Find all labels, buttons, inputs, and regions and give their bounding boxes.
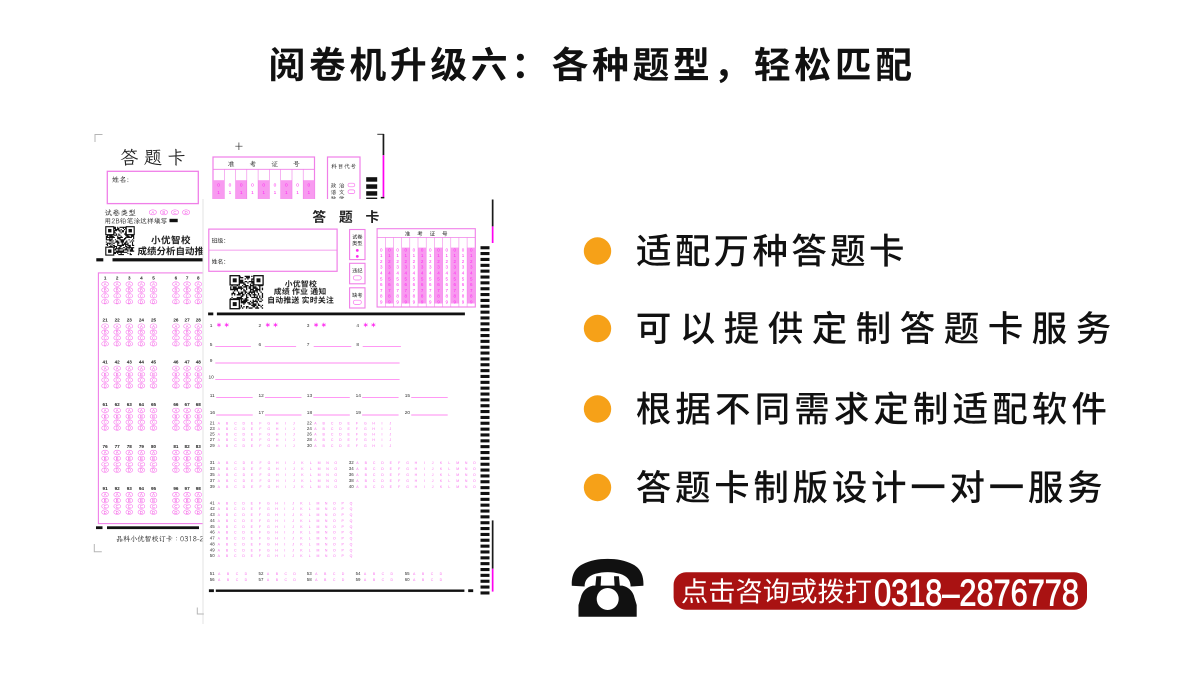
svg-text:C: C	[186, 420, 189, 425]
svg-text:35: 35	[210, 472, 215, 477]
svg-text:C: C	[174, 462, 177, 467]
svg-text:0: 0	[240, 182, 243, 188]
svg-text:D: D	[152, 510, 155, 515]
svg-text:16: 16	[210, 410, 216, 416]
svg-text:C: C	[116, 293, 119, 298]
svg-text:19: 19	[356, 410, 362, 416]
svg-text:D: D	[152, 299, 155, 304]
svg-text:B: B	[186, 456, 189, 461]
svg-text:C: C	[186, 462, 189, 467]
svg-text:I: I	[382, 444, 383, 448]
svg-text:42: 42	[210, 506, 215, 511]
svg-text:D: D	[128, 510, 131, 515]
svg-text:18: 18	[307, 410, 313, 416]
svg-text:F: F	[356, 444, 358, 448]
svg-text:O: O	[473, 467, 476, 471]
svg-text:6: 6	[259, 342, 262, 348]
svg-text:C: C	[173, 210, 176, 215]
svg-text:B: B	[186, 288, 189, 293]
svg-text:Q: Q	[350, 519, 353, 523]
svg-text:I: I	[285, 473, 286, 477]
svg-text:D: D	[186, 341, 189, 346]
svg-text:A: A	[128, 324, 131, 329]
svg-text:J: J	[292, 525, 294, 529]
svg-text:I: I	[284, 507, 285, 511]
svg-text:76: 76	[103, 444, 109, 449]
svg-text:A: A	[128, 450, 131, 455]
svg-text:I: I	[382, 438, 383, 442]
svg-text:5: 5	[152, 276, 155, 281]
svg-text:O: O	[333, 501, 336, 505]
svg-text:B: B	[104, 372, 107, 377]
svg-text:F: F	[259, 531, 261, 535]
svg-text:F: F	[356, 438, 358, 442]
svg-text:G: G	[268, 479, 271, 483]
svg-text:D: D	[116, 510, 119, 515]
svg-text:D: D	[116, 426, 119, 431]
svg-text:D: D	[152, 384, 155, 389]
svg-text:23: 23	[210, 426, 215, 431]
svg-text:A: A	[152, 366, 155, 371]
svg-text:G: G	[406, 485, 409, 489]
svg-text:L: L	[309, 543, 311, 547]
svg-text:3: 3	[307, 323, 310, 329]
svg-text:G: G	[267, 433, 270, 437]
svg-text:C: C	[186, 504, 189, 509]
svg-text:O: O	[333, 537, 336, 541]
svg-text:12: 12	[259, 393, 265, 399]
svg-text:G: G	[267, 421, 270, 425]
svg-text:I: I	[285, 461, 286, 465]
svg-text:L: L	[448, 479, 450, 483]
svg-text:F: F	[398, 485, 400, 489]
svg-text:J: J	[432, 479, 434, 483]
svg-text:15: 15	[405, 393, 411, 399]
svg-text:G: G	[268, 461, 271, 465]
svg-text:F: F	[356, 427, 358, 431]
svg-text:L: L	[309, 501, 311, 505]
svg-text:L: L	[309, 548, 311, 552]
svg-text:I: I	[382, 427, 383, 431]
svg-text:B: B	[140, 330, 143, 335]
svg-text:45: 45	[151, 360, 157, 365]
svg-text:L: L	[310, 479, 312, 483]
svg-text:51: 51	[210, 571, 215, 576]
svg-text:C: C	[152, 336, 155, 341]
svg-text:G: G	[364, 433, 367, 437]
svg-text:4: 4	[356, 323, 359, 329]
svg-text:7: 7	[186, 276, 189, 281]
svg-text:A: A	[116, 324, 119, 329]
svg-text:F: F	[260, 467, 262, 471]
svg-text:C: C	[116, 420, 119, 425]
svg-text:A: A	[116, 282, 119, 287]
svg-text:7: 7	[307, 342, 310, 348]
svg-text:B: B	[186, 372, 189, 377]
svg-text:Q: Q	[350, 531, 353, 535]
svg-text:A: A	[116, 450, 119, 455]
svg-text:C: C	[140, 504, 143, 509]
svg-text:G: G	[364, 438, 367, 442]
svg-text:J: J	[292, 519, 294, 523]
svg-text:D: D	[140, 384, 143, 389]
svg-text:A: A	[152, 492, 155, 497]
svg-text:C: C	[128, 293, 131, 298]
svg-text:D: D	[104, 299, 107, 304]
svg-text:M: M	[318, 473, 321, 477]
svg-text:G: G	[267, 427, 270, 431]
svg-text:A: A	[175, 324, 178, 329]
svg-text:A: A	[175, 282, 178, 287]
svg-text:C: C	[186, 336, 189, 341]
svg-text:B: B	[175, 414, 178, 419]
svg-text:G: G	[267, 543, 270, 547]
svg-text:L: L	[448, 473, 450, 477]
svg-text:Q: Q	[350, 543, 353, 547]
svg-text:I: I	[284, 537, 285, 541]
svg-text:D: D	[186, 299, 189, 304]
svg-text:I: I	[284, 554, 285, 558]
svg-text:F: F	[398, 473, 400, 477]
svg-text:53: 53	[307, 571, 312, 576]
svg-text:A: A	[175, 450, 178, 455]
svg-text:G: G	[267, 531, 270, 535]
svg-text:F: F	[259, 444, 261, 448]
svg-text:B: B	[152, 372, 155, 377]
svg-text:B: B	[116, 330, 119, 335]
svg-text:A: A	[104, 324, 107, 329]
svg-text:C: C	[152, 293, 155, 298]
svg-text:B: B	[116, 414, 119, 419]
svg-text:C: C	[128, 420, 131, 425]
svg-text:A: A	[186, 408, 189, 413]
svg-text:J: J	[293, 438, 295, 442]
svg-text:40: 40	[349, 484, 354, 489]
svg-text:1: 1	[210, 323, 213, 329]
svg-text:F: F	[259, 537, 261, 541]
svg-text:G: G	[406, 473, 409, 477]
svg-text:I: I	[382, 433, 383, 437]
svg-text:I: I	[285, 485, 286, 489]
svg-text:L: L	[309, 507, 311, 511]
svg-text:95: 95	[151, 486, 157, 491]
svg-text:D: D	[104, 468, 107, 473]
svg-text:C: C	[152, 462, 155, 467]
svg-text:D: D	[174, 384, 177, 389]
svg-text:B: B	[128, 330, 131, 335]
svg-text:A: A	[104, 492, 107, 497]
svg-text:B: B	[186, 498, 189, 503]
svg-text:A: A	[116, 408, 119, 413]
svg-text:G: G	[268, 467, 271, 471]
svg-text:A: A	[116, 366, 119, 371]
svg-text:J: J	[293, 467, 295, 471]
svg-text:J: J	[293, 473, 295, 477]
svg-text:A: A	[128, 366, 131, 371]
svg-text:21: 21	[210, 420, 215, 425]
svg-text:77: 77	[115, 444, 121, 449]
svg-text:59: 59	[356, 577, 361, 582]
svg-text:C: C	[152, 504, 155, 509]
svg-text:C: C	[152, 420, 155, 425]
svg-text:B: B	[128, 414, 131, 419]
svg-text:I: I	[424, 461, 425, 465]
svg-text:44: 44	[210, 518, 215, 523]
svg-text:A: A	[152, 324, 155, 329]
svg-text:L: L	[310, 467, 312, 471]
svg-text:J: J	[390, 444, 392, 448]
svg-text:B: B	[116, 456, 119, 461]
svg-text:32: 32	[349, 460, 354, 465]
svg-text:41: 41	[210, 500, 215, 505]
svg-text:66: 66	[173, 402, 179, 407]
svg-text:A: A	[186, 450, 189, 455]
svg-text:F: F	[260, 473, 262, 477]
svg-text:D: D	[186, 510, 189, 515]
svg-text:22: 22	[115, 318, 121, 323]
svg-text:C: C	[104, 378, 107, 383]
svg-text:28: 28	[307, 437, 312, 442]
svg-text:D: D	[186, 468, 189, 473]
svg-text:O: O	[333, 543, 336, 547]
svg-text:B: B	[175, 330, 178, 335]
svg-text:D: D	[185, 210, 188, 215]
svg-text:27: 27	[210, 437, 215, 442]
svg-text:D: D	[104, 426, 107, 431]
svg-text:42: 42	[115, 360, 121, 365]
svg-text:B: B	[152, 288, 155, 293]
svg-text:54: 54	[356, 571, 361, 576]
svg-text:96: 96	[173, 486, 179, 491]
svg-text:65: 65	[151, 402, 157, 407]
svg-text:64: 64	[139, 402, 145, 407]
svg-text:F: F	[356, 421, 358, 425]
svg-text:L: L	[448, 485, 450, 489]
svg-text:A: A	[104, 366, 107, 371]
svg-text:D: D	[186, 384, 189, 389]
svg-text:C: C	[174, 420, 177, 425]
svg-text:31: 31	[210, 460, 215, 465]
svg-text:B: B	[140, 456, 143, 461]
svg-text:D: D	[140, 510, 143, 515]
svg-text:I: I	[284, 531, 285, 535]
svg-text:J: J	[293, 479, 295, 483]
svg-text:M: M	[316, 543, 319, 547]
svg-text:8: 8	[356, 342, 359, 348]
svg-text:82: 82	[185, 444, 191, 449]
svg-text:61: 61	[103, 402, 109, 407]
svg-text:2: 2	[116, 276, 119, 281]
svg-text:0: 0	[274, 182, 277, 188]
svg-text:J: J	[292, 513, 294, 517]
svg-text:G: G	[364, 421, 367, 425]
svg-text:A: A	[186, 366, 189, 371]
svg-text:B: B	[116, 288, 119, 293]
svg-text:43: 43	[210, 512, 215, 517]
svg-text:B: B	[140, 498, 143, 503]
svg-text:26: 26	[307, 432, 312, 437]
svg-text:M: M	[456, 461, 459, 465]
svg-text:F: F	[260, 461, 262, 465]
svg-text:A: A	[152, 282, 155, 287]
svg-text:B: B	[128, 498, 131, 503]
svg-text:G: G	[364, 427, 367, 431]
svg-text:O: O	[334, 473, 337, 477]
svg-text:56: 56	[210, 577, 215, 582]
svg-text:A: A	[140, 408, 143, 413]
svg-text:M: M	[456, 485, 459, 489]
svg-text:A: A	[128, 408, 131, 413]
svg-text:B: B	[152, 414, 155, 419]
svg-text:C: C	[104, 336, 107, 341]
svg-text:C: C	[128, 504, 131, 509]
svg-text:D: D	[140, 426, 143, 431]
svg-text:67: 67	[185, 402, 191, 407]
svg-text:93: 93	[127, 486, 133, 491]
svg-text:F: F	[259, 427, 261, 431]
svg-text:94: 94	[139, 486, 145, 491]
svg-text:I: I	[285, 427, 286, 431]
svg-text:36: 36	[349, 472, 354, 477]
svg-text:55: 55	[405, 571, 410, 576]
svg-text:L: L	[309, 519, 311, 523]
svg-text:80: 80	[151, 444, 157, 449]
svg-text:F: F	[259, 525, 261, 529]
svg-text:M: M	[316, 531, 319, 535]
svg-text:L: L	[448, 467, 450, 471]
svg-text:0: 0	[285, 182, 288, 188]
svg-text:J: J	[292, 548, 294, 552]
svg-text:Q: Q	[350, 525, 353, 529]
svg-text:L: L	[310, 473, 312, 477]
svg-text:34: 34	[349, 466, 354, 471]
svg-text:J: J	[292, 501, 294, 505]
svg-text:C: C	[116, 504, 119, 509]
svg-text:F: F	[260, 485, 262, 489]
svg-text:J: J	[293, 427, 295, 431]
svg-text:J: J	[293, 433, 295, 437]
svg-text:G: G	[267, 513, 270, 517]
svg-text:O: O	[333, 548, 336, 552]
svg-text:C: C	[140, 462, 143, 467]
svg-text:I: I	[424, 479, 425, 483]
svg-text:B: B	[116, 372, 119, 377]
svg-text:O: O	[334, 479, 337, 483]
svg-text:M: M	[318, 461, 321, 465]
svg-text:I: I	[285, 421, 286, 425]
svg-text:D: D	[116, 468, 119, 473]
svg-text:D: D	[152, 426, 155, 431]
svg-text:J: J	[432, 473, 434, 477]
svg-text:G: G	[267, 501, 270, 505]
svg-text:L: L	[309, 537, 311, 541]
svg-text:39: 39	[210, 484, 215, 489]
svg-text:D: D	[116, 299, 119, 304]
svg-text:C: C	[140, 378, 143, 383]
svg-text:L: L	[310, 461, 312, 465]
svg-text:Q: Q	[350, 513, 353, 517]
svg-text:B: B	[152, 456, 155, 461]
svg-text:33: 33	[210, 466, 215, 471]
svg-text:13: 13	[307, 393, 313, 399]
svg-text:B: B	[152, 330, 155, 335]
svg-text:47: 47	[210, 536, 215, 541]
svg-text:91: 91	[103, 486, 109, 491]
svg-text:Q: Q	[350, 537, 353, 541]
svg-text:Q: Q	[350, 507, 353, 511]
svg-text:B: B	[140, 372, 143, 377]
svg-text:G: G	[267, 525, 270, 529]
svg-text:L: L	[309, 531, 311, 535]
svg-text:25: 25	[210, 432, 215, 437]
svg-text:J: J	[432, 485, 434, 489]
svg-text:J: J	[292, 554, 294, 558]
svg-text:0: 0	[296, 182, 299, 188]
svg-text:F: F	[259, 543, 261, 547]
svg-text:M: M	[316, 513, 319, 517]
svg-text:A: A	[116, 492, 119, 497]
svg-text:41: 41	[103, 360, 109, 365]
svg-text:G: G	[406, 461, 409, 465]
svg-text:B: B	[175, 288, 178, 293]
svg-text:97: 97	[185, 486, 191, 491]
svg-text:M: M	[316, 501, 319, 505]
svg-text:B: B	[152, 498, 155, 503]
svg-text:C: C	[186, 293, 189, 298]
svg-text:37: 37	[210, 478, 215, 483]
svg-text:G: G	[267, 438, 270, 442]
svg-text:27: 27	[185, 318, 191, 323]
svg-text:A: A	[104, 450, 107, 455]
svg-text:L: L	[309, 513, 311, 517]
svg-text:A: A	[151, 210, 154, 215]
svg-text:F: F	[259, 421, 261, 425]
svg-text:C: C	[140, 420, 143, 425]
svg-text:F: F	[398, 467, 400, 471]
svg-text:49: 49	[210, 547, 215, 552]
svg-text:F: F	[259, 433, 261, 437]
svg-text:O: O	[473, 473, 476, 477]
svg-text:B: B	[104, 414, 107, 419]
svg-text:C: C	[104, 420, 107, 425]
svg-text:O: O	[333, 554, 336, 558]
svg-text:I: I	[285, 433, 286, 437]
svg-text:G: G	[267, 548, 270, 552]
svg-text:I: I	[424, 473, 425, 477]
svg-text:C: C	[128, 336, 131, 341]
svg-text:I: I	[285, 438, 286, 442]
svg-text:D: D	[116, 341, 119, 346]
svg-text:M: M	[456, 473, 459, 477]
svg-text:Q: Q	[350, 548, 353, 552]
svg-text:I: I	[424, 467, 425, 471]
svg-text:B: B	[104, 498, 107, 503]
svg-text:C: C	[174, 293, 177, 298]
svg-text:D: D	[128, 468, 131, 473]
svg-text:D: D	[104, 341, 107, 346]
svg-text:F: F	[259, 519, 261, 523]
svg-text:B: B	[128, 372, 131, 377]
svg-text:A: A	[140, 366, 143, 371]
svg-text:1: 1	[104, 276, 107, 281]
svg-text:M: M	[316, 507, 319, 511]
svg-text:L: L	[309, 554, 311, 558]
svg-text:C: C	[174, 504, 177, 509]
svg-text:10: 10	[209, 375, 215, 381]
svg-text:J: J	[432, 461, 434, 465]
svg-text:B: B	[186, 414, 189, 419]
svg-text:A: A	[104, 408, 107, 413]
